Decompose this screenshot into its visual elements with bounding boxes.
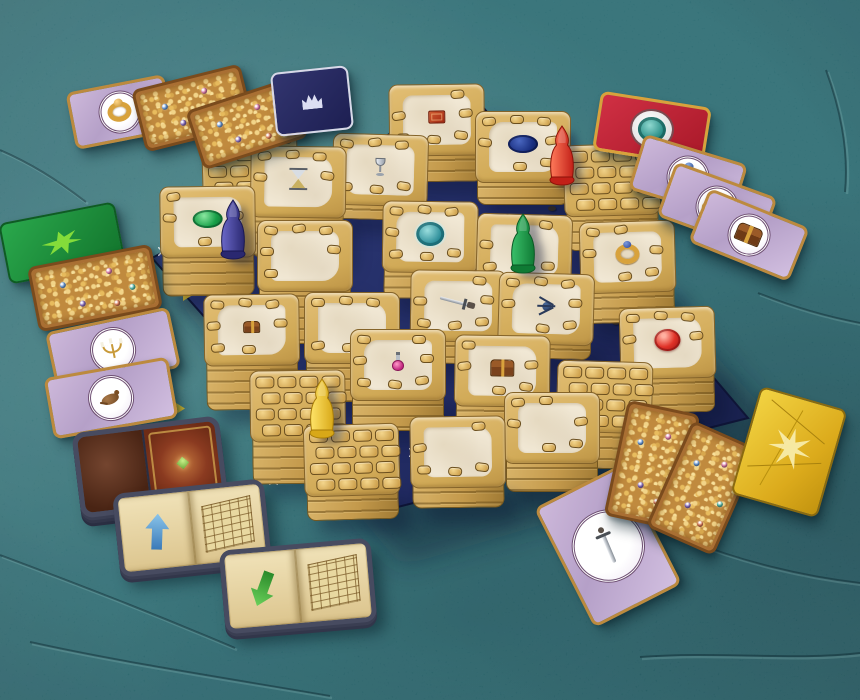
game-board	[0, 0, 860, 700]
board-game-photo	[0, 0, 860, 700]
